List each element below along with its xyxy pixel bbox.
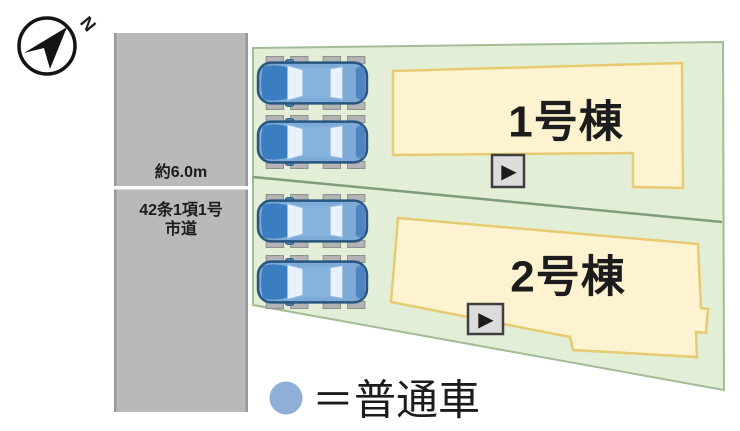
play-icon[interactable]: ▶ [501,161,517,183]
legend-label: ＝普通車 [312,377,480,424]
north-label: N [76,13,100,36]
car-icon [258,57,367,110]
legend: ＝普通車 [270,377,481,424]
building-2-button[interactable]: ▶ [468,304,503,334]
site-plan-diagram: N 約6.0m 42条1項1号 市道 1号棟 ▶ 2号棟 ▶ [0,0,740,431]
road-designation-line1: 42条1項1号 [139,200,223,219]
building-1-label: 1号棟 [508,98,623,147]
road: 約6.0m 42条1項1号 市道 [114,33,248,412]
compass: N [19,13,100,74]
building-1-button[interactable]: ▶ [492,155,524,187]
road-designation-line2: 市道 [165,219,197,238]
legend-car-circle-icon [270,382,303,415]
road-centerline [114,186,248,190]
car-icon [258,256,367,309]
car-icon [258,195,367,248]
road-left-edge [114,33,117,412]
building-2-label: 2号棟 [510,253,625,302]
car-icon [258,116,367,169]
road-width-label: 約6.0m [155,162,207,181]
play-icon[interactable]: ▶ [478,309,494,331]
road-right-edge [246,33,249,412]
